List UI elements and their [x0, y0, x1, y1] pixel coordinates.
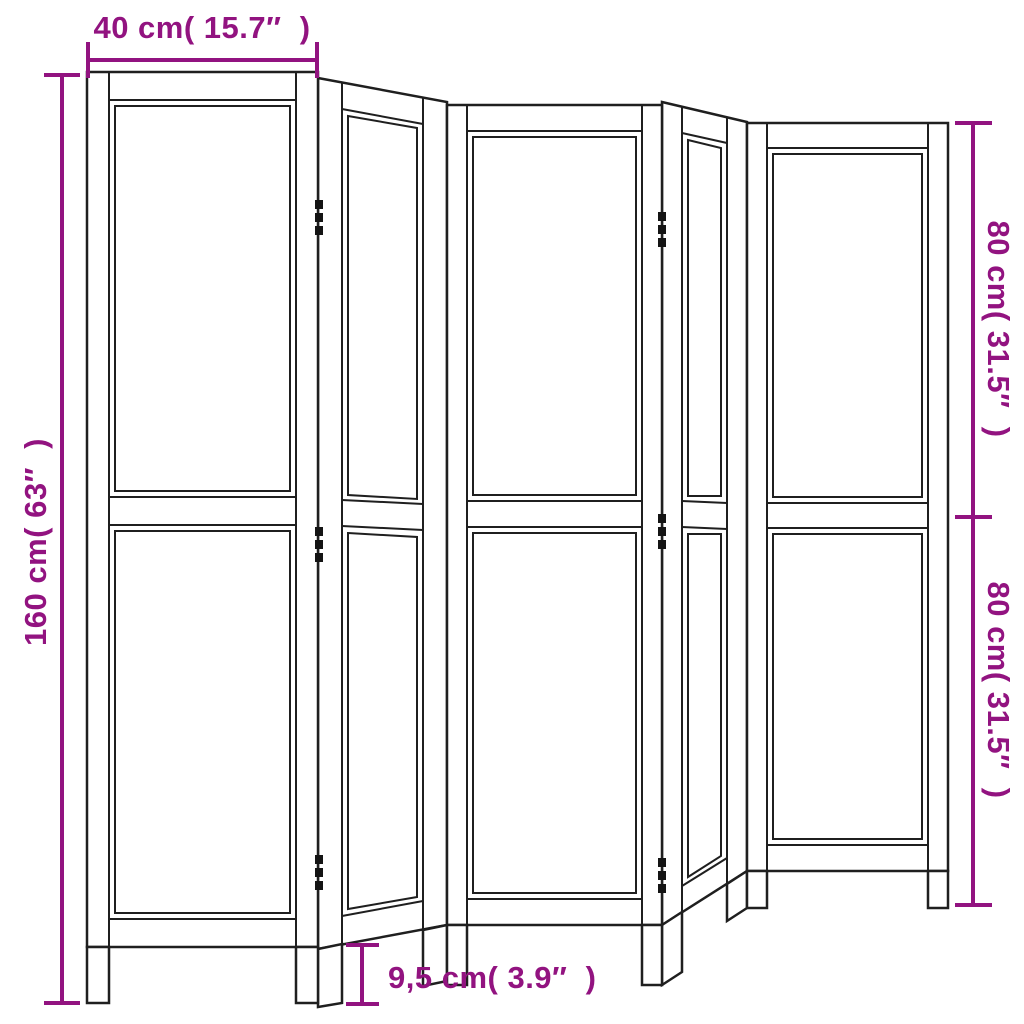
panel-4	[662, 102, 747, 985]
panel-leg-left	[662, 912, 682, 985]
hinge-icon	[658, 884, 666, 893]
panel-leg-right	[642, 925, 662, 985]
diagram-stage: 40 cm( 15.7″ ) 160 cm( 63″ ) 80 cm( 31.5…	[0, 0, 1024, 1024]
panel-leg-right	[928, 871, 948, 908]
hinge-icon	[315, 540, 323, 549]
hinge-icon	[658, 238, 666, 247]
panel-2	[318, 78, 447, 1007]
dimension-label-bottom: 9,5 cm( 3.9″ )	[388, 960, 596, 995]
hinge-icon	[315, 553, 323, 562]
panel-3	[447, 105, 662, 985]
panel-1	[87, 72, 318, 1003]
hinge-icon	[658, 514, 666, 523]
hinge-icon	[658, 527, 666, 536]
panel-frame	[447, 105, 662, 925]
panel-leg-left	[87, 947, 109, 1003]
panel-leg-left	[318, 944, 342, 1007]
panel-leg-left	[747, 871, 767, 908]
hinge-icon	[658, 212, 666, 221]
dimension-label-top: 40 cm( 15.7″ )	[93, 10, 310, 45]
hinge-icon	[658, 858, 666, 867]
dimension-label-right-bottom: 80 cm( 31.5″ )	[981, 581, 1016, 798]
panel-leg-right	[296, 947, 318, 1003]
hinge-icon	[315, 200, 323, 209]
hinge-icon	[315, 527, 323, 536]
panel-frame	[318, 78, 447, 949]
dimension-label-right-top: 80 cm( 31.5″ )	[981, 220, 1016, 437]
room-divider-dimension-diagram: 40 cm( 15.7″ ) 160 cm( 63″ ) 80 cm( 31.5…	[0, 0, 1024, 1024]
hinge-icon	[315, 868, 323, 877]
hinge-icon	[315, 213, 323, 222]
panel-frame	[87, 72, 318, 947]
hinge-icon	[658, 225, 666, 234]
hinge-icon	[315, 855, 323, 864]
hinge-icon	[315, 226, 323, 235]
panel-frame	[662, 102, 747, 925]
hinge-icon	[658, 540, 666, 549]
panel-5	[747, 123, 948, 908]
dimension-label-left: 160 cm( 63″ )	[18, 438, 53, 646]
hinge-icon	[658, 871, 666, 880]
hinge-icon	[315, 881, 323, 890]
